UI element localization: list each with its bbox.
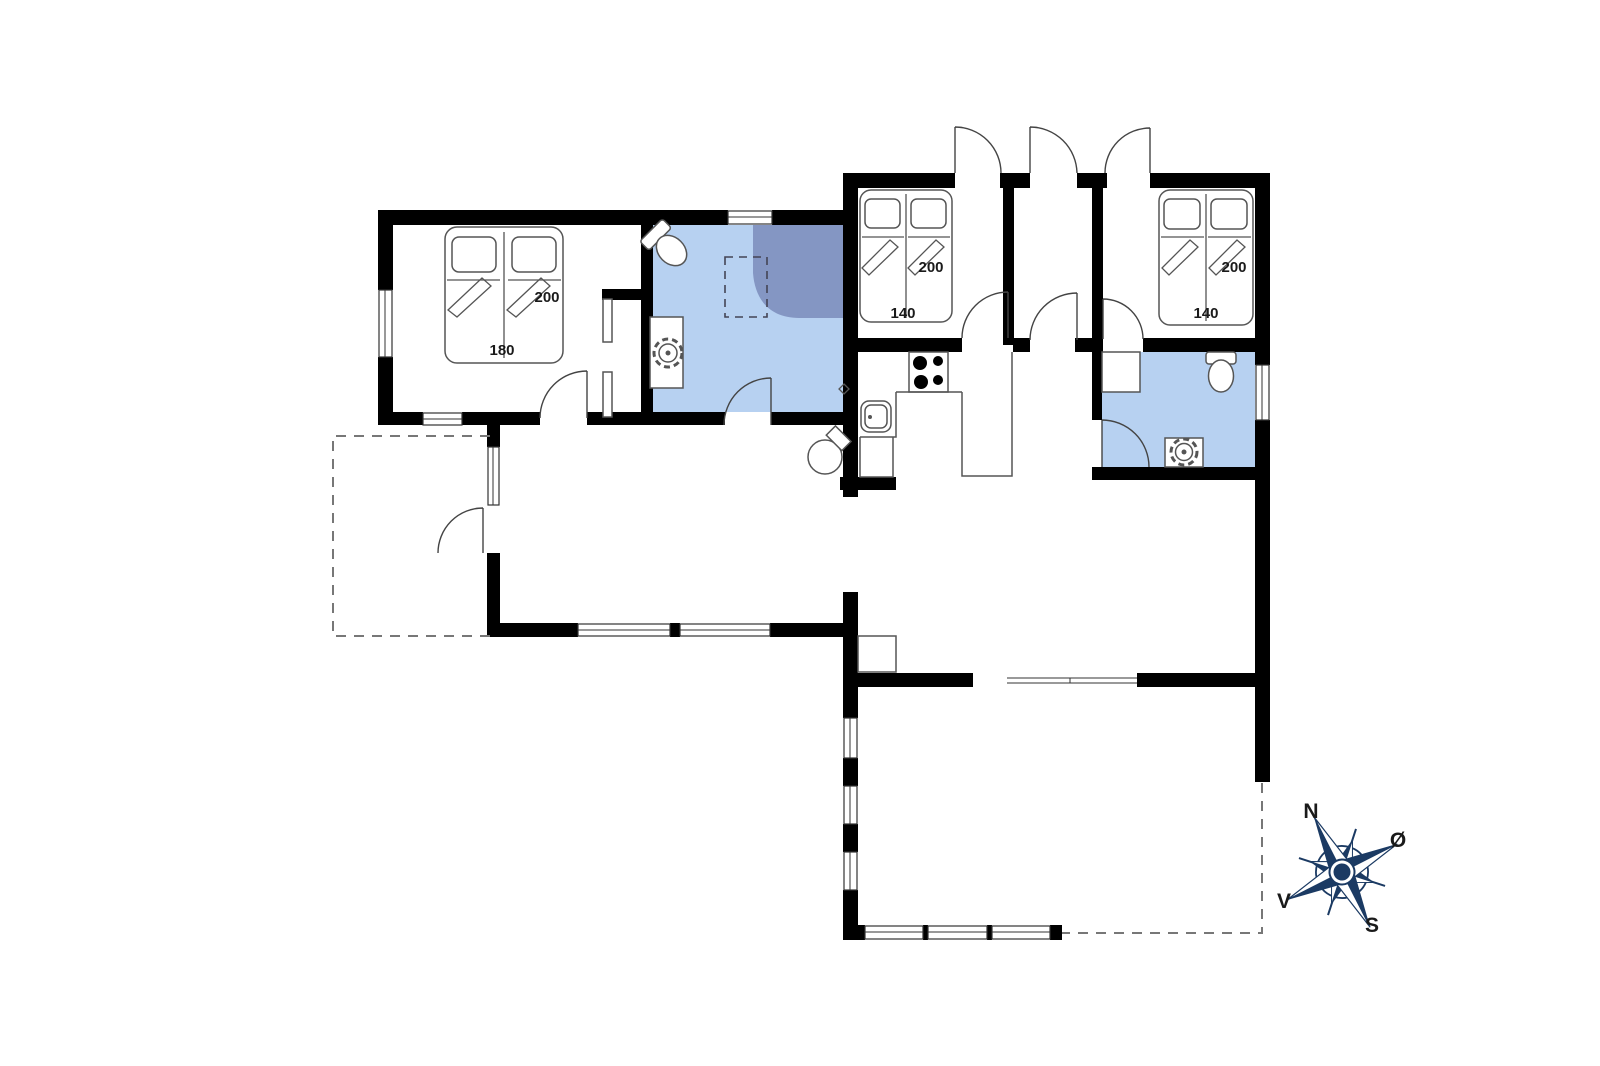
- window: [1256, 365, 1269, 420]
- compass-north-label: N: [1303, 800, 1318, 823]
- terrace-door: [438, 508, 483, 553]
- bedroom-3-door: [1103, 299, 1143, 339]
- kitchen: [860, 352, 1012, 477]
- compass-west-label: V: [1277, 890, 1291, 913]
- glass-wall: [1007, 678, 1137, 683]
- bedroom-2-door: [962, 292, 1008, 338]
- terrace-left: [333, 436, 490, 636]
- floor-plan: 200 180 200 140 200 140: [0, 0, 1600, 1066]
- compass-south-label: S: [1365, 914, 1379, 937]
- sink-icon: [654, 339, 682, 367]
- terrace-right: [1062, 783, 1262, 933]
- closet-jamb: [603, 372, 612, 417]
- window: [928, 926, 987, 939]
- window: [728, 211, 772, 224]
- bed1-length-label: 200: [534, 289, 559, 306]
- bed2-length-label: 200: [918, 259, 943, 276]
- window: [844, 852, 857, 890]
- window: [844, 718, 857, 758]
- window: [578, 624, 670, 636]
- hall-door: [1030, 293, 1077, 340]
- closet-jamb: [603, 299, 612, 342]
- sink-icon: [1171, 439, 1197, 465]
- window: [680, 624, 770, 636]
- window: [488, 447, 499, 505]
- fireplace: [858, 636, 896, 672]
- kitchen-sink-icon: [861, 401, 891, 432]
- window: [379, 290, 392, 357]
- entrance-door-3: [1105, 128, 1150, 173]
- bed3-length-label: 200: [1221, 259, 1246, 276]
- terraces: [333, 436, 1262, 933]
- stove: [909, 352, 948, 392]
- entrance-door-1: [955, 127, 1001, 173]
- compass-east-label: Ø: [1390, 829, 1406, 852]
- bed3-width-label: 140: [1193, 305, 1218, 322]
- window: [992, 926, 1050, 939]
- entrance-door-2: [1030, 127, 1077, 173]
- window: [423, 413, 462, 425]
- bed2-width-label: 140: [890, 305, 915, 322]
- shower-cabin: [1102, 352, 1140, 392]
- compass-rose-icon: N Ø V S: [1259, 789, 1426, 956]
- toilet-icon: [1206, 352, 1236, 392]
- floor-plan-canvas: 200 180 200 140 200 140: [0, 0, 1600, 1066]
- double-bed-140-left: [860, 190, 952, 322]
- window: [865, 926, 923, 939]
- bed1-width-label: 180: [489, 342, 514, 359]
- window: [844, 786, 857, 824]
- bedroom-1-door: [540, 371, 587, 418]
